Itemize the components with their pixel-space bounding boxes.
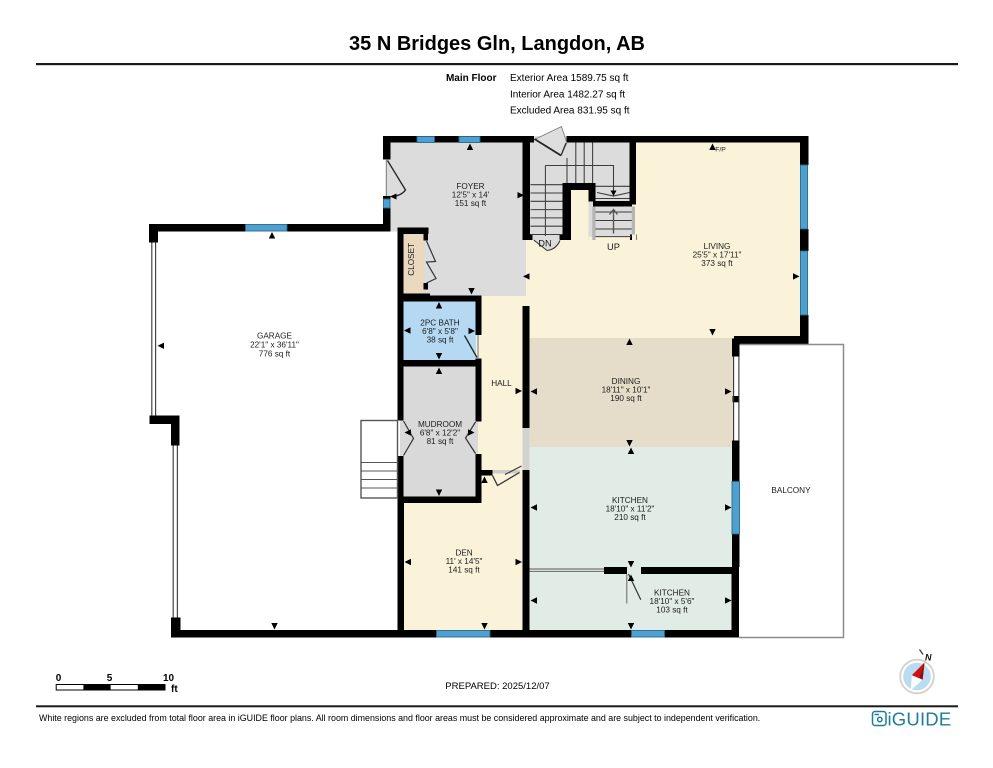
svg-text:373 sq ft: 373 sq ft <box>701 259 733 268</box>
svg-text:35 N Bridges Gln, Langdon, AB: 35 N Bridges Gln, Langdon, AB <box>349 33 645 55</box>
svg-text:ft: ft <box>171 684 178 695</box>
svg-text:81 sq ft: 81 sq ft <box>427 437 455 446</box>
svg-text:22'1" x 36'11": 22'1" x 36'11" <box>250 341 299 350</box>
svg-text:N: N <box>925 653 932 663</box>
svg-text:F/P: F/P <box>715 147 726 154</box>
svg-text:White regions are excluded fro: White regions are excluded from total fl… <box>39 713 760 723</box>
svg-text:Main Floor: Main Floor <box>446 73 497 84</box>
svg-text:HALL: HALL <box>491 379 512 388</box>
svg-text:210 sq ft: 210 sq ft <box>614 513 646 522</box>
svg-text:0: 0 <box>56 673 62 684</box>
svg-text:190 sq ft: 190 sq ft <box>610 394 642 403</box>
svg-text:141 sq ft: 141 sq ft <box>448 566 480 575</box>
svg-text:PREPARED: 2025/12/07: PREPARED: 2025/12/07 <box>445 681 549 692</box>
svg-text:38 sq ft: 38 sq ft <box>427 336 455 345</box>
svg-text:Excluded Area 831.95 sq ft: Excluded Area 831.95 sq ft <box>510 106 630 117</box>
svg-text:BALCONY: BALCONY <box>771 486 811 495</box>
svg-text:Exterior Area 1589.75 sq ft: Exterior Area 1589.75 sq ft <box>510 73 629 84</box>
svg-text:DN: DN <box>538 239 551 249</box>
svg-text:776 sq ft: 776 sq ft <box>259 350 291 359</box>
svg-text:151 sq ft: 151 sq ft <box>455 199 487 208</box>
svg-text:103 sq ft: 103 sq ft <box>656 606 688 615</box>
svg-text:Interior Area 1482.27 sq ft: Interior Area 1482.27 sq ft <box>510 90 625 101</box>
svg-text:CLOSET: CLOSET <box>407 243 416 276</box>
svg-text:GARAGE: GARAGE <box>257 332 293 341</box>
svg-text:10: 10 <box>163 673 175 684</box>
svg-text:UP: UP <box>607 242 620 252</box>
svg-text:iGUIDE: iGUIDE <box>888 709 952 730</box>
svg-text:5: 5 <box>107 673 113 684</box>
